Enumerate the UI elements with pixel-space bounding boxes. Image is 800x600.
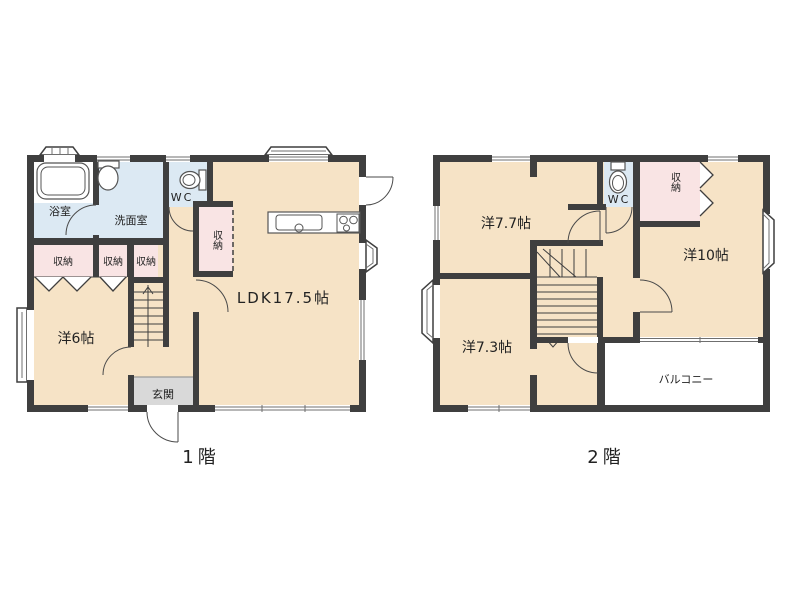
label-closet-a: 収納	[53, 255, 73, 268]
bathtub-icon	[37, 163, 89, 199]
kitchen-counter-icon	[268, 212, 360, 233]
toilet-icon-1f	[180, 170, 206, 190]
balcony-window	[640, 337, 758, 343]
floor1-plan: 浴室 洗面室 WC 収納 収納 収納 収納 洋6帖 LDK17.5帖 玄関 1階	[17, 147, 393, 468]
bay-window-ldk-right	[359, 240, 377, 272]
bay-window-bath	[40, 147, 79, 162]
ldk-exterior-door-arc	[366, 177, 393, 205]
floor2-caption: 2階	[587, 447, 624, 468]
label-bath: 浴室	[49, 204, 71, 218]
label-wc-1f: WC	[171, 191, 194, 204]
bay-window-bedroom6	[17, 308, 34, 382]
label-entrance: 玄関	[152, 387, 174, 401]
entrance-door-arc	[147, 412, 178, 442]
label-ldk: LDK17.5帖	[237, 289, 331, 307]
floorplan-svg: 浴室 洗面室 WC 収納 収納 収納 収納 洋6帖 LDK17.5帖 玄関 1階	[0, 0, 800, 600]
floor2-plan: 洋7.7帖 WC 収納 洋10帖 洋7.3帖 バルコニー 2階	[422, 155, 774, 468]
label-wc-2f: WC	[608, 193, 631, 206]
label-closet-b: 収納	[103, 255, 123, 268]
bay-window-ldk-top	[265, 147, 332, 162]
label-bedroom77: 洋7.7帖	[481, 216, 531, 232]
label-closet-2f: 収納	[669, 172, 681, 193]
washbasin-icon	[98, 161, 119, 190]
label-balcony: バルコニー	[659, 373, 714, 386]
floorplan-canvas: 浴室 洗面室 WC 収納 収納 収納 収納 洋6帖 LDK17.5帖 玄関 1階	[0, 0, 800, 600]
label-bedroom73: 洋7.3帖	[462, 340, 512, 356]
toilet-icon-2f	[610, 162, 627, 193]
bay-window-bedroom73	[422, 280, 440, 343]
label-bedroom6: 洋6帖	[58, 331, 95, 347]
bay-window-bedroom10	[763, 210, 774, 273]
floor1-caption: 1階	[182, 447, 219, 468]
label-washroom: 洗面室	[115, 213, 148, 227]
label-closet-hall: 収納	[211, 230, 223, 251]
label-closet-c: 収納	[136, 255, 156, 268]
label-bedroom10: 洋10帖	[683, 248, 729, 264]
